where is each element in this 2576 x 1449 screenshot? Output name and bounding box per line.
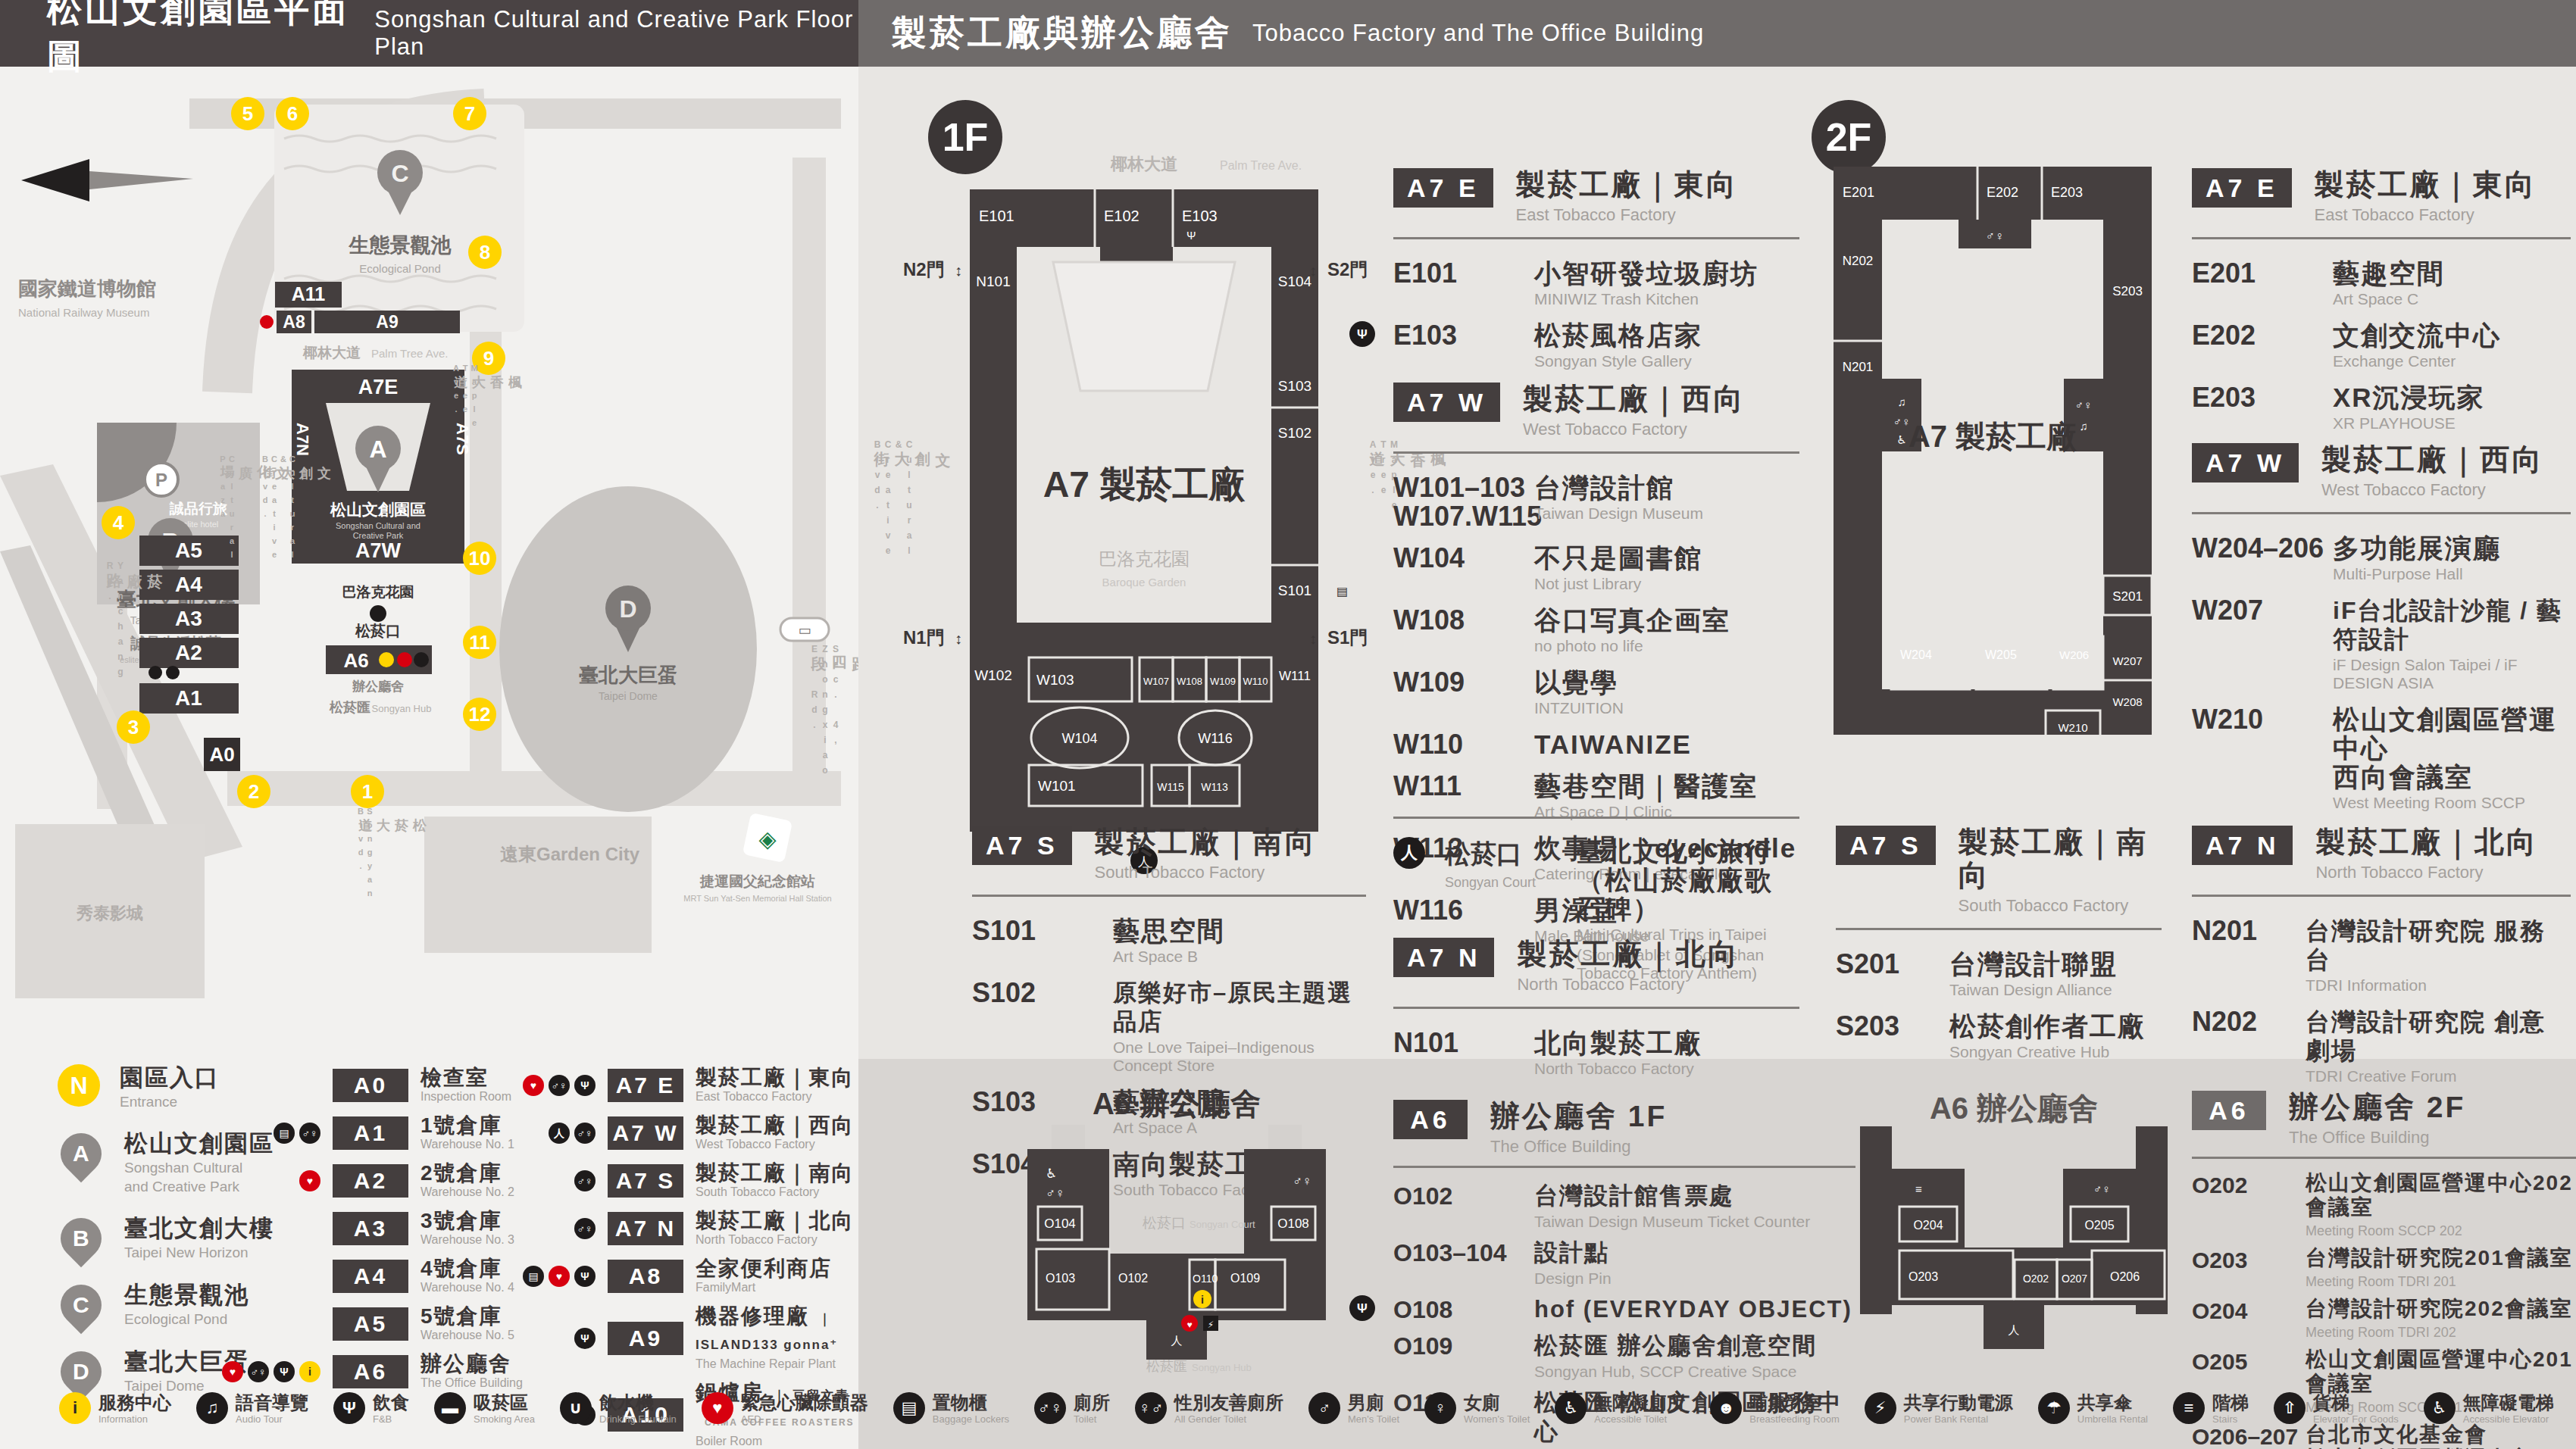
info-icon: i <box>299 1361 320 1382</box>
toilet-icon: ♂♀ <box>574 1218 596 1239</box>
list-item-o202: O202 松山文創園區營運中心202會議室Meeting Room SCCP 2… <box>2192 1171 2576 1240</box>
toilet-glyph: ♂♀ <box>1046 1186 1065 1201</box>
room-o108: O108 <box>1277 1216 1309 1231</box>
a7n-badge: A7 N <box>1393 938 1494 977</box>
right-title-en: Tobacco Factory and The Office Building <box>1252 20 1704 47</box>
room-w104: W104 <box>1061 731 1097 746</box>
room-w110: W110 <box>1243 676 1268 687</box>
svg-text:3: 3 <box>128 716 139 739</box>
legend-a4: A4 4號倉庫Warehouse No. 4 <box>216 1257 523 1294</box>
entrance-en: Entrance <box>120 1093 220 1110</box>
walk-glyph: 人 <box>1171 1334 1183 1347</box>
toilet-glyph: ♂♀ <box>1893 415 1911 428</box>
fnb-icon: Ψ <box>574 1266 596 1287</box>
toilet-icon: ♂♀ <box>248 1361 269 1382</box>
svg-text:1: 1 <box>362 780 373 803</box>
map-court-zh: 松菸口 <box>355 623 401 639</box>
palm-ave-zh: 椰林大道 <box>302 345 361 361</box>
railway-museum-en: National Railway Museum <box>18 306 149 319</box>
room-w111: W111 <box>1279 669 1311 683</box>
locker-icon: ▤ <box>523 1266 544 1287</box>
legend-fountain: ∪飲水機Drinking Fountain <box>560 1392 677 1426</box>
legend-a7n: ♂♀ A7 N 製菸工廠｜北向North Tobacco Factory <box>491 1210 858 1247</box>
legend-all-gender: ♀♂性別友善廁所All Gender Toilet <box>1135 1392 1283 1426</box>
room-o207: O207 <box>2062 1273 2087 1285</box>
plan-1f: 椰林大道 Palm Tree Ave. E101 E102 E103 Ψ N2門… <box>894 141 1379 906</box>
plaza-en: Cultural Plaza <box>218 454 236 564</box>
legend-umbrella: ☂共享傘Umbrella Rental <box>2038 1392 2148 1426</box>
legend-a3: A3 3號倉庫Warehouse No. 3 <box>216 1210 523 1247</box>
locker-dot-icon <box>414 652 429 667</box>
room-w205: W205 <box>1985 648 2017 661</box>
pond-en: Ecological Pond <box>359 262 441 275</box>
a6f2-title: A6 辦公廳舍 <box>1930 1091 2098 1125</box>
svg-text:5: 5 <box>242 102 253 125</box>
aed-icon: ♥ <box>299 1170 320 1191</box>
a7s-badge: A7 S <box>1836 826 1936 865</box>
trips-icon: 人 <box>1393 837 1425 869</box>
accessible-elevator-icon: ♿ <box>2424 1392 2456 1424</box>
room-s203: S203 <box>2112 284 2143 298</box>
room-w115: W115 <box>1157 781 1184 793</box>
metro-glyph: ◈ <box>758 826 776 851</box>
list-item-w204-206: W204–206 多功能展演廳Multi-Purpose Hall <box>2192 534 2571 583</box>
garden-city-block <box>424 817 652 953</box>
mrt-en: MRT Sun Yat-Sen Memorial Hall Station <box>683 894 831 903</box>
list-item-w207: W207 iF台北設計沙龍 / 藝符設計iF Design Salon Taip… <box>2192 596 2571 692</box>
room-w101: W101 <box>1038 778 1076 794</box>
room-o206: O206 <box>2110 1270 2140 1283</box>
legend-a7e: ♥♂♀Ψ A7 E 製菸工廠｜東向East Tobacco Factory <box>491 1066 858 1104</box>
list-item-s201: S201 台灣設計聯盟Taiwan Design Alliance <box>1836 950 2162 999</box>
list-item-o103-104: O103–104 設計點Design Pin <box>1393 1238 1855 1288</box>
list-item-w108: W108 谷口写真企画室no photo no life <box>1393 606 1799 655</box>
toilet-glyph: ♂♀ <box>2075 398 2093 411</box>
legend-a8: ▤♥Ψ A8 全家便利商店FamilyMart <box>491 1257 858 1294</box>
legend-accessible-toilet: ♿無障礙廁所Accessible Toilet <box>1555 1392 1685 1426</box>
toilet-icon: ♂♀ <box>574 1123 596 1144</box>
fnb-icon: Ψ <box>333 1392 365 1424</box>
a8-label: A8 <box>283 312 305 332</box>
a7w-badge: A7 W <box>1393 383 1500 422</box>
legend-smoking: ▬吸菸區Smoking Area <box>434 1392 535 1426</box>
stairs-glyph: ≡ <box>1915 1182 1922 1195</box>
legend-a1: ▤♂♀ A1 1號倉庫Warehouse No. 1 <box>216 1114 523 1151</box>
list-item-e201: E201 藝趣空間Art Space C <box>2192 259 2571 308</box>
legend-powerbank: ⚡共享行動電源Power Bank Rental <box>1865 1392 2013 1426</box>
legend-a5: A5 5號倉庫Warehouse No. 5 <box>216 1305 523 1342</box>
door-n1: N1門 <box>903 627 945 648</box>
svg-text:A3: A3 <box>175 607 202 630</box>
door-n2: N2門 <box>903 259 945 279</box>
palm-label-en: Palm Tree Ave. <box>1220 159 1302 172</box>
mens-toilet-icon: ♂ <box>1308 1392 1340 1424</box>
list-item-o102: O102 台灣設計館售票處Taiwan Design Museum Ticket… <box>1393 1182 1855 1231</box>
toilet-glyph: ♂♀ <box>1293 1174 1312 1188</box>
all-gender-toilet-icon: ♀♂ <box>1135 1392 1167 1424</box>
info-glyph: i <box>1201 1294 1204 1306</box>
toilet-icon: ♂♀ <box>549 1075 570 1096</box>
door-s2: S2門 <box>1327 259 1368 279</box>
maple-en: Maple Tree Ave. <box>452 364 479 432</box>
list-item-o108: Ψ O108 hof (EVERYDAY OBJECT) <box>1393 1295 1855 1324</box>
accessible-glyph: ♿ <box>1896 433 1906 446</box>
stairs-icon: ≡ <box>2173 1392 2205 1424</box>
fnb-icon: Ψ <box>274 1361 295 1382</box>
door-n1-arrow: ↕ <box>955 630 962 647</box>
section-2f-a7e: A7 E 製菸工廠｜東向East Tobacco Factory E201 藝趣… <box>2192 168 2571 445</box>
aed-icon: ♥ <box>702 1392 733 1424</box>
svg-text:12: 12 <box>469 703 491 726</box>
list-item-e203: E203 XR沉浸玩家XR PLAYHOUSE <box>2192 383 2571 433</box>
info-dot-icon <box>379 652 394 667</box>
section-2f-a7s: A7 S 製菸工廠｜南向South Tobacco Factory S201 台… <box>1836 826 2162 1074</box>
a6-badge: A6 <box>2192 1091 2266 1130</box>
pin-b-icon: B <box>52 1210 110 1267</box>
toilet-icon: ♂♀ <box>574 1170 596 1191</box>
list-item-w109: W109 以覺學INTZUITION <box>1393 668 1799 717</box>
goods-elevator-icon: ⇧ <box>2274 1392 2306 1424</box>
pin-c-icon: C <box>52 1276 110 1334</box>
list-item-o109: O109 松菸匯 辦公廳舍創意空間Songyan Hub, SCCP Creat… <box>1393 1332 1855 1381</box>
trips-icon: 人 <box>549 1123 570 1144</box>
room-o203: O203 <box>1909 1270 1938 1283</box>
section-1f-a7e: A7 E 製菸工廠｜東向East Tobacco Factory E101 小智… <box>1393 168 1799 383</box>
legend-stairs: ≡階梯Stairs <box>2173 1392 2249 1426</box>
legend-lockers: ▤置物櫃Baggage Lockers <box>893 1392 1009 1426</box>
legend-audio-tour: ♫語音導覽Audio Tour <box>196 1392 308 1426</box>
room-o109: O109 <box>1230 1272 1260 1285</box>
info-icon: i <box>59 1392 91 1424</box>
smoking-icon: ▬ <box>434 1392 466 1424</box>
legend-a6: ♥♂♀Ψi A6 辦公廳舍The Office Building <box>216 1353 523 1390</box>
dome-zh: 臺北大巨蛋 <box>579 664 677 686</box>
toilet-glyph: ♂♀ <box>1986 230 2004 242</box>
walk-dot-icon <box>370 605 386 622</box>
a11-label: A11 <box>292 283 326 304</box>
facility-legend-strip: i服務中心Information ♫語音導覽Audio Tour Ψ飲食F&B … <box>59 1392 2552 1440</box>
power-bank-icon: ⚡ <box>1865 1392 1896 1424</box>
section-2f-a7n: A7 N 製菸工廠｜北向North Tobacco Factory N201 台… <box>2192 826 2571 1098</box>
legend-aed: ♥緊急心臟除顫器AED <box>702 1392 868 1426</box>
aed-icon: ♥ <box>549 1266 570 1287</box>
a7e-badge: A7 E <box>2192 168 2292 208</box>
baroque-zh: 巴洛克花園 <box>1099 548 1190 569</box>
list-item-n101: N101 北向製菸工廠North Tobacco Factory <box>1393 1029 1799 1078</box>
aed-icon: ♥ <box>222 1361 243 1382</box>
list-item-w110: W110 TAIWANIZE <box>1393 730 1799 759</box>
svg-text:7: 7 <box>464 102 475 125</box>
list-item-s203: S203 松菸創作者工廠Songyan Creative Hub <box>1836 1012 2162 1061</box>
a6f1-hub-zh: 松菸匯 <box>1146 1359 1187 1374</box>
room-w206: W206 <box>2059 648 2089 661</box>
a6-badge: A6 <box>1393 1100 1468 1139</box>
a7n-badge: A7 N <box>2192 826 2293 865</box>
svg-text:11: 11 <box>469 631 490 654</box>
a7w-map-label: A7W <box>355 539 402 562</box>
yanchang-en: Yanchang Rd. <box>105 561 126 682</box>
palm-label-zh: 椰林大道 <box>1110 155 1178 173</box>
list-item-o203: O203 台灣設計研究院201會議室Meeting Room TDRI 201 <box>2192 1246 2576 1291</box>
north-arrow-tail <box>89 171 193 189</box>
legend-a9: Ψ A9 機器修理廠｜ ISLAND133 gonna⁺ The Machine… <box>491 1305 858 1371</box>
mrt-zh: 捷運國父紀念館站 <box>699 873 815 889</box>
a7s-badge: A7 S <box>972 826 1072 865</box>
room-w207: W207 <box>2112 654 2142 667</box>
a6f1-court-zh: 松菸口 <box>1142 1215 1186 1231</box>
floor-plan-poster: 松山文創園區平面圖 Songshan Cultural and Creative… <box>0 0 2576 1449</box>
legend-toilet: ♂♀廁所Toilet <box>1034 1392 1110 1426</box>
room-s101: S101 <box>1278 582 1311 598</box>
breastfeeding-icon: ☻ <box>1710 1392 1742 1424</box>
room-o110: O110 <box>1193 1273 1218 1285</box>
accessible-glyph: ♿ <box>1046 1166 1057 1181</box>
room-s104: S104 <box>1278 273 1312 289</box>
accessible-dot-icon <box>148 666 162 679</box>
north-arrow-icon <box>21 159 89 201</box>
toilet-icon: ♂♀ <box>299 1123 320 1144</box>
park-map-panel: 松山文創園區平面圖 Songshan Cultural and Creative… <box>0 0 858 1449</box>
room-o204: O204 <box>1913 1219 1943 1232</box>
aed-dot-icon <box>260 315 274 329</box>
room-e101: E101 <box>979 208 1014 224</box>
entrance-marker-icon: N <box>58 1064 100 1107</box>
factory-panel: 製菸工廠與辦公廳舍 Tobacco Factory and The Office… <box>858 0 2576 1449</box>
toilet-dot-icon <box>166 666 180 679</box>
audio-glyph: ♫ <box>2079 420 2087 433</box>
svg-text:D: D <box>619 595 636 623</box>
garden-city-label: 遠東Garden City <box>500 844 640 864</box>
park-en2: Creative Park <box>353 531 404 540</box>
toilet-icon: ♂♀ <box>1034 1392 1066 1424</box>
park-en1: Songshan Cultural and <box>336 521 420 530</box>
a7w-badge: A7 W <box>2192 443 2299 482</box>
railway-museum-zh: 國家鐵道博物館 <box>18 277 156 300</box>
section-1f-a7n: A7 N 製菸工廠｜北向North Tobacco Factory N101 北… <box>1393 938 1799 1091</box>
room-n202: N202 <box>1843 254 1874 268</box>
list-item-n202: N202 台灣設計研究院 創意劇場TDRI Creative Forum <box>2192 1007 2571 1085</box>
a6f1-hub-en: Songyan Hub <box>1192 1362 1252 1373</box>
svg-text:10: 10 <box>469 547 491 570</box>
audio-tour-icon: ♫ <box>196 1392 228 1424</box>
svg-text:C: C <box>391 160 408 187</box>
legend-a7s: ♂♀ A7 S 製菸工廠｜南向South Tobacco Factory <box>491 1162 858 1199</box>
map-hub-zh: 松菸匯 <box>329 700 370 715</box>
drinking-fountain-icon: ∪ <box>560 1392 592 1424</box>
parking-glyph: P <box>155 470 167 490</box>
room-w116: W116 <box>1198 731 1233 746</box>
room-w107: W107 <box>1143 676 1169 687</box>
palm-ave-en: Palm Tree Ave. <box>371 347 448 360</box>
room-o102: O102 <box>1118 1272 1148 1285</box>
list-item-s102: S102 原樂好市–原民主題選品店One Love Taipei–Indigen… <box>972 979 1366 1075</box>
list-item-e103: Ψ E103 松菸風格店家Songyan Style Gallery <box>1393 321 1799 370</box>
fnb-icon: Ψ <box>1349 1295 1375 1321</box>
list-item-e202: E202 文創交流中心Exchange Center <box>2192 321 2571 370</box>
legend-accessible-elevator: ♿無障礙電梯Accessible Elevator <box>2424 1392 2554 1426</box>
a7e-badge: A7 E <box>1393 168 1493 208</box>
map-hub-en: Songyan Hub <box>372 703 432 714</box>
room-s102: S102 <box>1278 425 1311 441</box>
legend-breastfeeding: ☻哺集乳室Breastfeeding Room <box>1710 1392 1840 1426</box>
audio-glyph: ♫ <box>1897 395 1905 408</box>
list-item-w104: W104 不只是圖書館Not just Library <box>1393 544 1799 593</box>
park-zh: 松山文創園區 <box>330 501 426 518</box>
room-n201: N201 <box>1843 360 1874 374</box>
svg-text:8: 8 <box>480 241 490 264</box>
room-o103: O103 <box>1046 1272 1075 1285</box>
songyan-blvd-en: Songyan Blvd. <box>356 807 374 902</box>
room-o104: O104 <box>1044 1216 1076 1231</box>
right-header: 製菸工廠與辦公廳舍 Tobacco Factory and The Office… <box>858 0 2576 67</box>
legend-buildings: A0 檢查室Inspection Room ▤♂♀ A1 1號倉庫Warehou… <box>216 1066 523 1401</box>
door-n2-arrow: ↕ <box>955 262 962 279</box>
fnb-icon: Ψ <box>574 1328 596 1349</box>
a9-label: A9 <box>376 312 398 332</box>
room-e103: E103 <box>1182 208 1218 224</box>
list-item-n201: N201 台灣設計研究院 服務台TDRI Information <box>2192 917 2571 995</box>
plan2f-center: A7 製菸工廠 <box>1909 420 2077 453</box>
room-w102: W102 <box>974 667 1012 683</box>
room-o205: O205 <box>2084 1219 2114 1232</box>
cc-en: Cultural & Creative Blvd. <box>261 454 297 564</box>
map-office: 辦公廳舍 <box>352 679 404 694</box>
baroque-garden-1f <box>1053 262 1235 391</box>
left-header: 松山文創園區平面圖 Songshan Cultural and Creative… <box>0 0 858 67</box>
pin-a-icon: A <box>52 1125 110 1182</box>
locker-glyph: ▤ <box>1336 585 1348 598</box>
map-baroque: 巴洛克花園 <box>342 584 414 600</box>
room-s201: S201 <box>2112 589 2143 604</box>
walk-glyph: 人 <box>2009 1323 2020 1336</box>
room-e201: E201 <box>1843 185 1874 200</box>
fnb-glyph: Ψ <box>1186 229 1196 242</box>
accessible-toilet-icon: ♿ <box>1555 1392 1587 1424</box>
aed-glyph: ♥ <box>1186 1319 1192 1330</box>
right-title-zh: 製菸工廠與辦公廳舍 <box>892 10 1233 57</box>
fnb-icon: Ψ <box>1349 321 1375 347</box>
plan1f-center: A7 製菸工廠 <box>1043 464 1246 504</box>
list-item-s101: S101 藝思空間Art Space B <box>972 917 1366 966</box>
plan-a6-2f: A6 辦公廳舍 ≡ ♂♀ O204 O205 O203 O202 O207 O2… <box>1843 1079 2184 1390</box>
room-w103: W103 <box>1036 672 1074 688</box>
toilet-glyph: ♂♀ <box>2093 1182 2111 1195</box>
a7e-map-label: A7E <box>358 376 399 398</box>
room-w113: W113 <box>1201 781 1228 793</box>
a6-map-label: A6 <box>343 649 368 672</box>
room-n101: N101 <box>976 273 1010 289</box>
pond-zh: 生態景觀池 <box>349 234 452 257</box>
a6f1-court-en: Songyan Court <box>1190 1219 1255 1230</box>
womens-toilet-icon: ♀ <box>1424 1392 1456 1424</box>
room-w210: W210 <box>2058 721 2087 734</box>
powerbank-glyph: ⚡ <box>1208 1319 1214 1330</box>
bus-glyph: ▭ <box>798 623 811 638</box>
fnb-icon: Ψ <box>574 1075 596 1096</box>
legend-fnb: Ψ飲食F&B <box>333 1392 409 1426</box>
list-item-w111: W111 藝巷空間｜醫護室Art Space D | Clinic <box>1393 772 1799 821</box>
entrance-zh: 園區入口 <box>120 1064 220 1091</box>
legend-mens: ♂男廁Men's Toilet <box>1308 1392 1399 1426</box>
svg-text:A2: A2 <box>175 641 202 664</box>
section-2f-a7w: A7 W 製菸工廠｜西向West Tobacco Factory W204–20… <box>2192 443 2571 825</box>
svg-text:A4: A4 <box>175 573 202 596</box>
svg-text:A5: A5 <box>175 539 202 562</box>
legend-womens: ♀女廁Women's Toilet <box>1424 1392 1530 1426</box>
room-e102: E102 <box>1104 208 1140 224</box>
plan-a6-1f: A6 辦公廳舍 ♿ ♂♀ ♂♀ O104 O108 松菸口 Songyan Co… <box>991 1079 1362 1375</box>
baroque-en: Baroque Garden <box>1102 576 1186 589</box>
svg-text:A1: A1 <box>175 686 202 710</box>
door-s1: S1門 <box>1327 627 1368 648</box>
left-title-en: Songshan Cultural and Creative Park Floo… <box>374 6 858 61</box>
svg-text:A: A <box>369 436 386 463</box>
svg-text:6: 6 <box>287 102 298 125</box>
legend-information: i服務中心Information <box>59 1392 171 1426</box>
zhongxiao-en: Sec. 4, Zhongxiao E. Rd. <box>809 644 841 780</box>
plan-2f: E201 E202 E203 N202 N201 S203 S201 ♂♀ ♫ … <box>1818 151 2182 788</box>
aed-icon: ♥ <box>523 1075 544 1096</box>
room-s103: S103 <box>1278 378 1311 394</box>
room-o202: O202 <box>2023 1273 2049 1285</box>
svg-text:2: 2 <box>249 780 259 803</box>
legend-a2: ♥ A2 2號倉庫Warehouse No. 2 <box>216 1162 523 1199</box>
room-e202: E202 <box>1987 185 2018 200</box>
south-road <box>227 771 841 806</box>
locker-icon: ▤ <box>893 1392 925 1424</box>
showtimes-label: 秀泰影城 <box>76 904 143 923</box>
locker-icon: ▤ <box>274 1123 295 1144</box>
list-item-e101: E101 小智研發垃圾廚坊MINIWIZ Trash Kitchen <box>1393 259 1799 308</box>
door-s1-arrow: ↕ <box>1309 630 1317 647</box>
room-e203: E203 <box>2051 185 2083 200</box>
legend-goods-elevator: ⇧貨梯Elevator For Goods <box>2274 1392 2399 1426</box>
legend-a7w: 人♂♀ A7 W 製菸工廠｜西向West Tobacco Factory <box>491 1114 858 1151</box>
legend-a0: A0 檢查室Inspection Room <box>216 1066 523 1104</box>
room-w204: W204 <box>1900 648 1932 661</box>
umbrella-icon: ☂ <box>2038 1392 2070 1424</box>
room-w208: W208 <box>2112 695 2142 708</box>
svg-text:A0: A0 <box>209 743 234 766</box>
a7n-map-label: A7N <box>293 423 312 456</box>
list-item-w210: W210 松山文創園區營運中心西向會議室West Meeting Room SC… <box>2192 705 2571 812</box>
dome-en: Taipei Dome <box>599 690 658 702</box>
list-item-w101: W101–103W107.W115 台灣設計館Taiwan Design Mus… <box>1393 473 1799 531</box>
svg-text:4: 4 <box>113 511 124 534</box>
a6f1-title: A6 辦公廳舍 <box>1093 1087 1261 1120</box>
list-item-o204: O204 台灣設計研究院202會議室Meeting Room TDRI 202 <box>2192 1297 2576 1341</box>
room-w108: W108 <box>1177 676 1202 687</box>
room-w109: W109 <box>1210 676 1236 687</box>
aed-dot2-icon <box>397 652 412 667</box>
